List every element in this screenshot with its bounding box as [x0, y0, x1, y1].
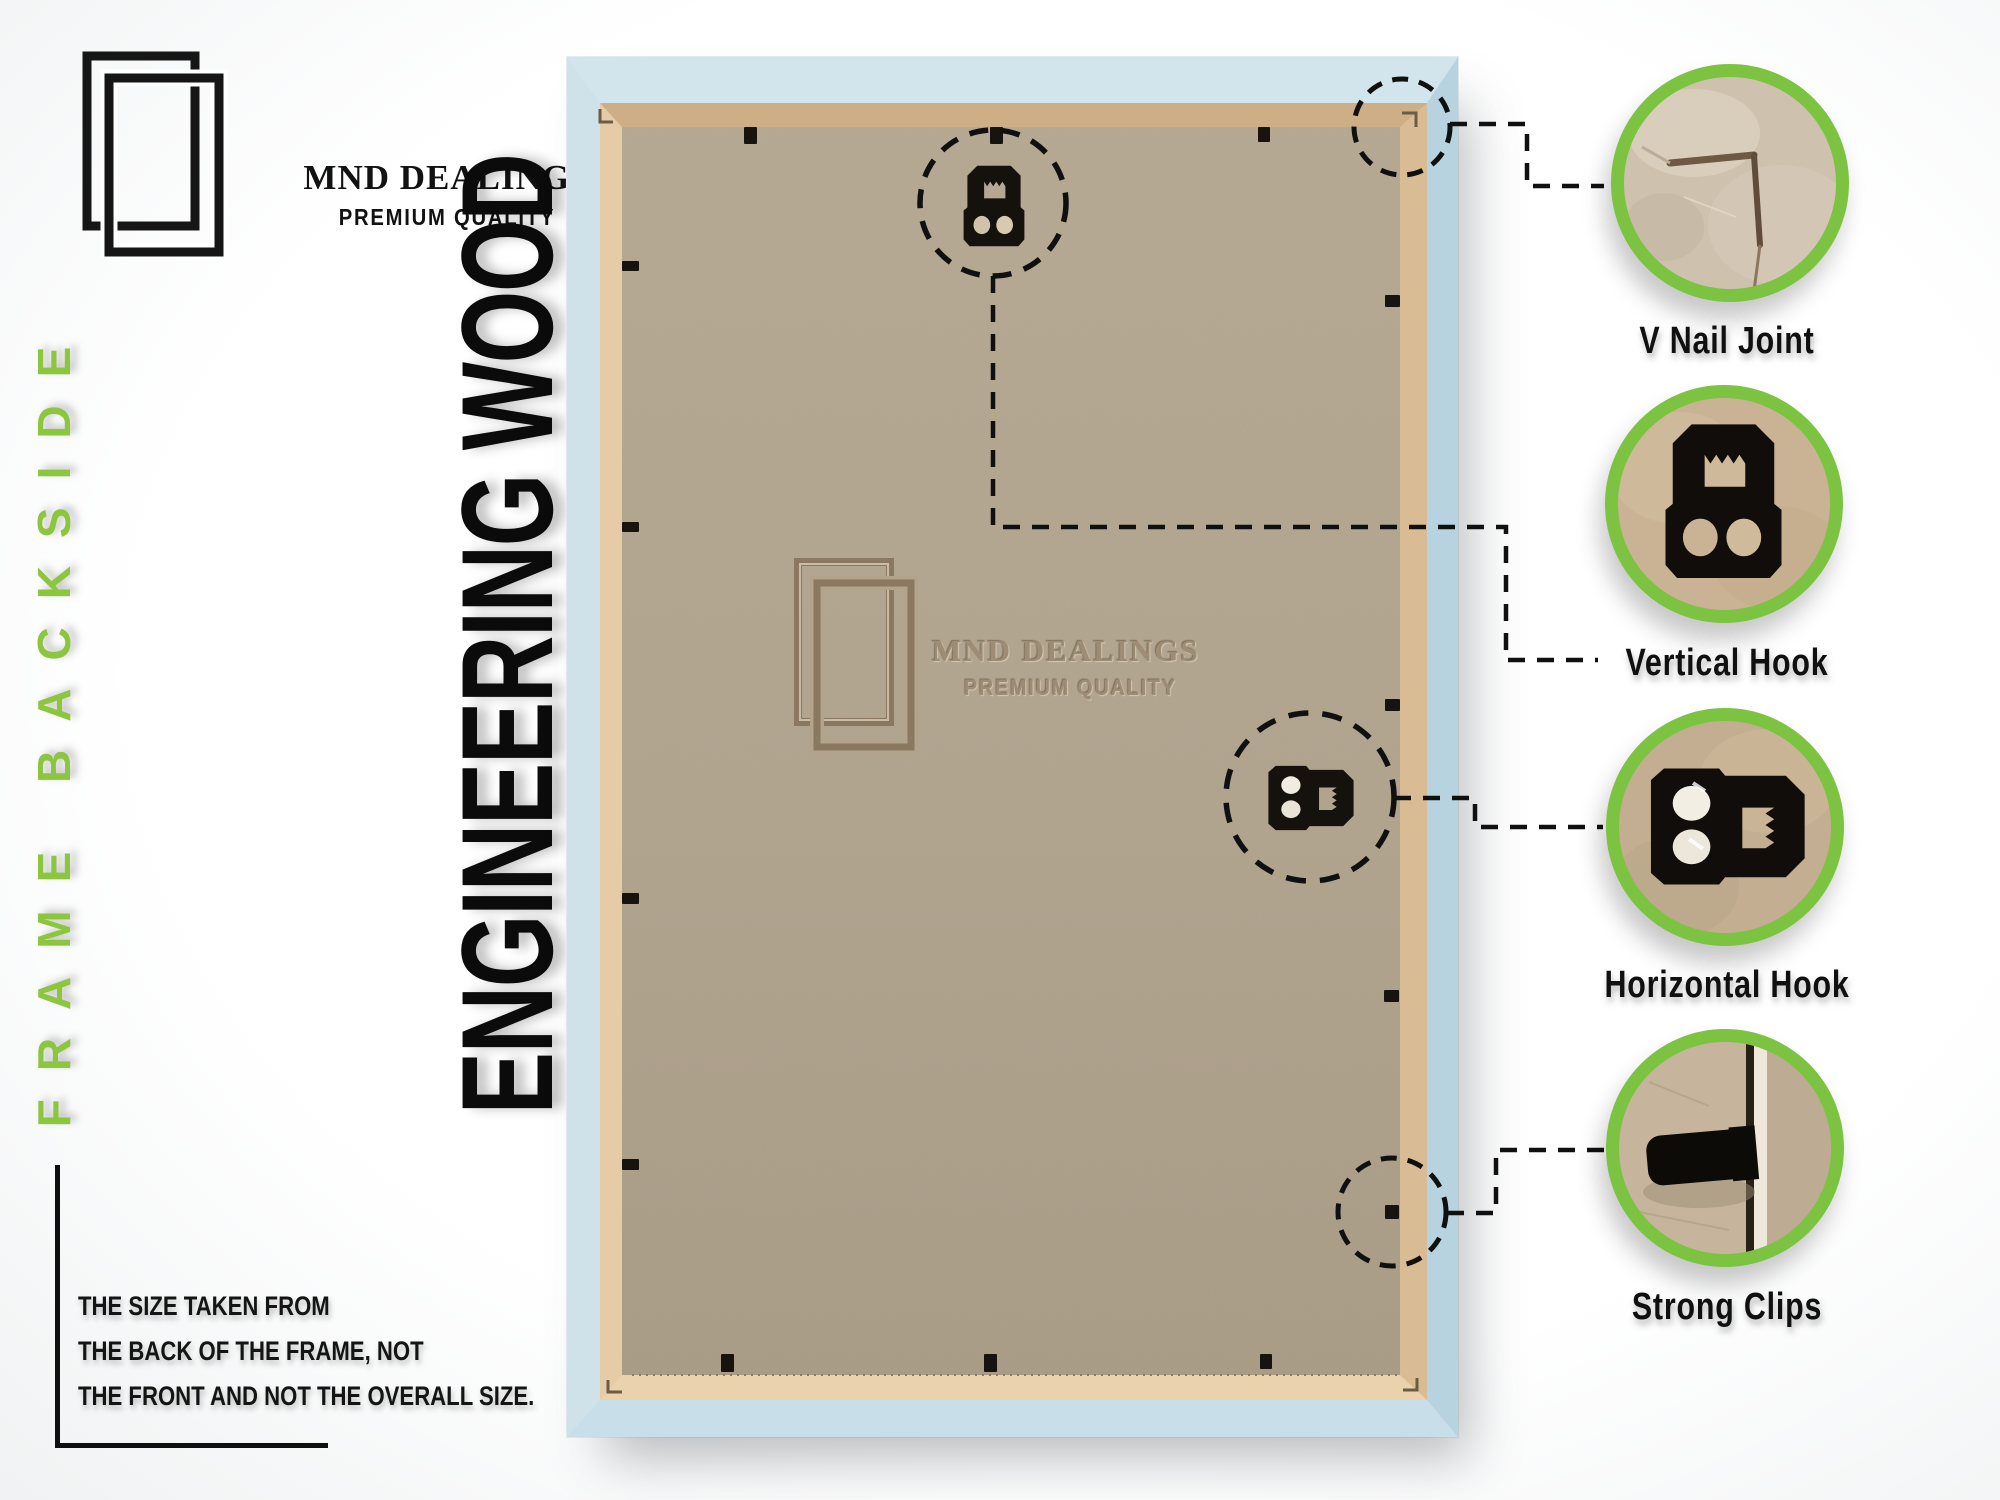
vertical-hook-callout — [1605, 385, 1843, 623]
vertical-hook-photo — [1618, 398, 1830, 610]
frame-backside-infographic: MND DEALINGS PREMIUM QUALITY FRAME BACKS… — [0, 0, 2000, 1500]
vertical-hook-leader-line — [993, 276, 1598, 660]
strong-clips-callout — [1606, 1029, 1844, 1267]
strong-clips-label: Strong Clips — [1559, 1286, 1895, 1329]
horizontal-hook-highlight-circle — [1226, 713, 1394, 881]
v-nail-joint-label: V Nail Joint — [1559, 320, 1895, 363]
horizontal-hook-label: Horizontal Hook — [1559, 964, 1895, 1007]
vertical-hook-highlight-circle — [920, 130, 1066, 276]
vertical-hook-label: Vertical Hook — [1559, 642, 1895, 685]
v-nail-joint-photo — [1624, 77, 1836, 289]
v-nail-joint-callout — [1611, 64, 1849, 302]
horizontal-hook-photo — [1619, 721, 1831, 933]
horizontal-hook-leader-line — [1394, 798, 1603, 827]
strong-clips-leader-line — [1447, 1150, 1613, 1213]
horizontal-hook-callout — [1606, 708, 1844, 946]
v-nail-joint-highlight-circle — [1354, 79, 1450, 175]
corner-joint-marks — [600, 109, 1417, 1392]
v-nail-joint-leader-line — [1450, 124, 1604, 186]
strong-clips-highlight-circle — [1338, 1158, 1446, 1266]
strong-clip-photo — [1619, 1042, 1831, 1254]
